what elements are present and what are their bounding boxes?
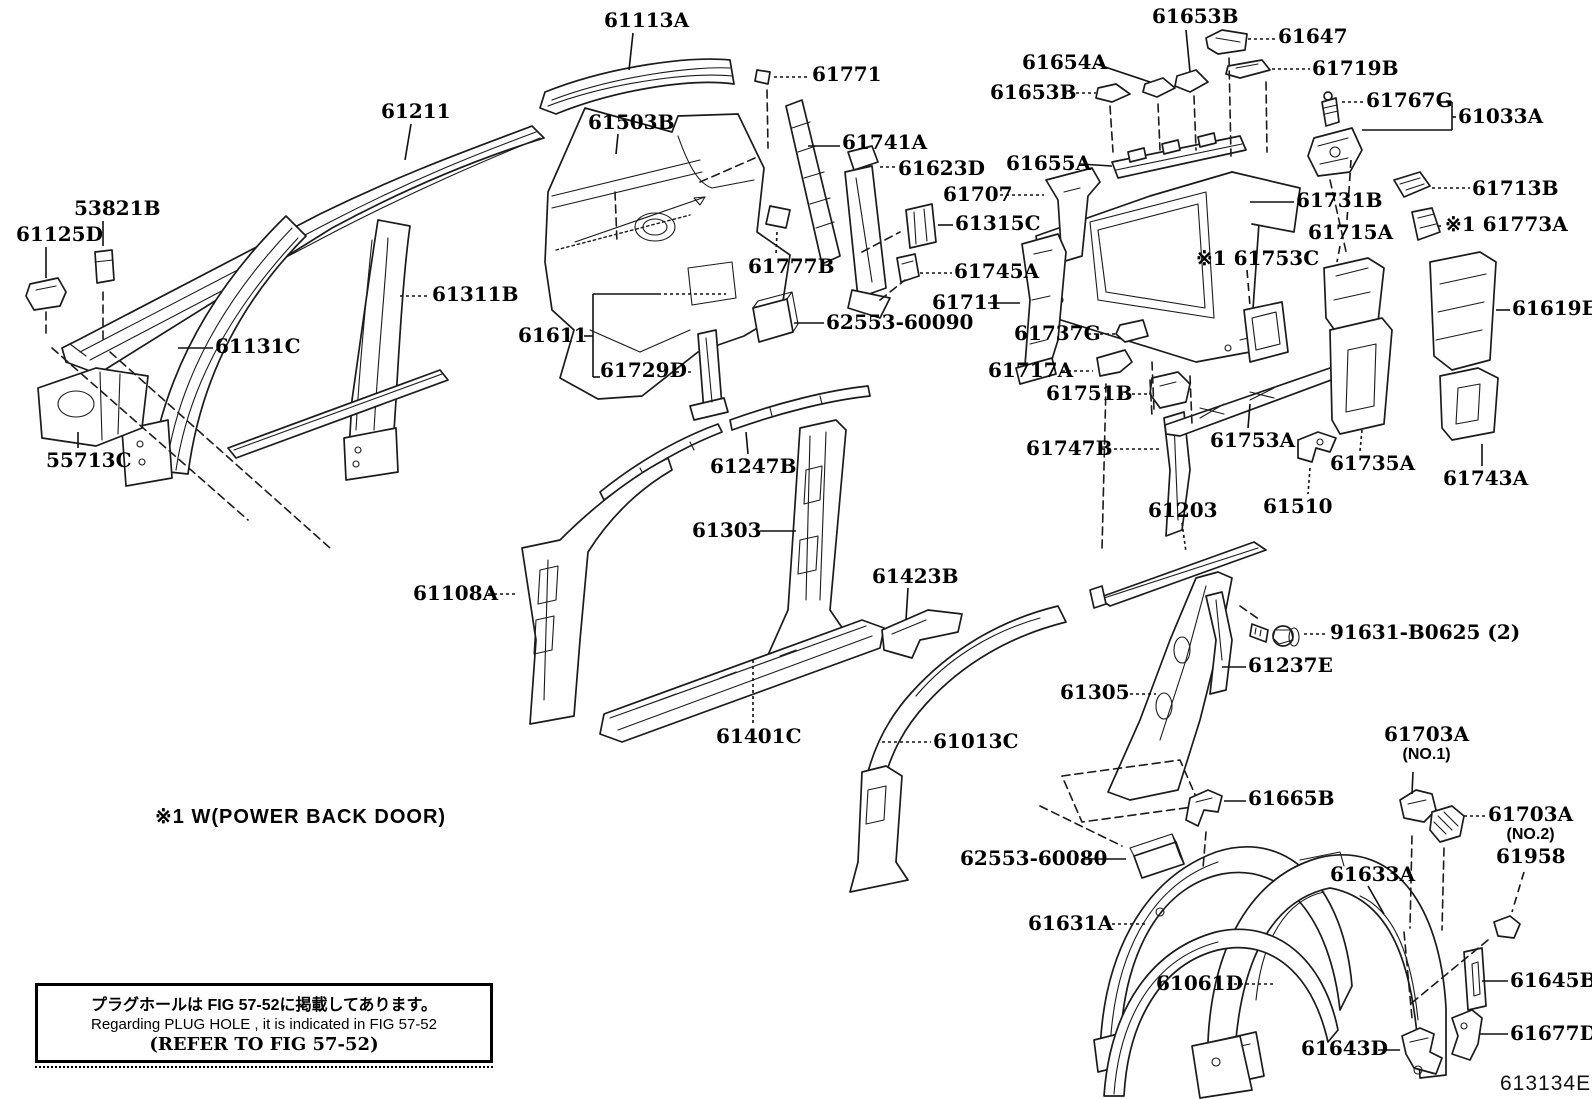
part-number-text: 61735A [1330,451,1415,475]
part-number-text: 61401C [716,724,802,748]
part-label-61731B: 61731B [1296,190,1382,210]
part-label-61711: 61711 [932,292,1002,312]
part-number-text: 61247B [710,454,796,478]
part-label-61753A: 61753A [1210,430,1295,450]
part-label-61631A: 61631A [1028,913,1113,933]
part-number-text: 61747B [1026,436,1112,460]
part-number-text: 61305 [1060,680,1130,704]
part-number-text: 61211 [381,99,451,123]
part-label-61623D: 61623D [898,158,985,178]
part-label-sub: (NO.1) [1384,747,1469,763]
part-number-text: 61647 [1278,24,1348,48]
part-label-61647: 61647 [1278,26,1348,46]
part-number-text: 61777B [748,254,834,278]
part-label-61203: 61203 [1148,500,1218,520]
powerbackdoor-footnote: ※1 W(POWER BACK DOOR) [155,804,446,829]
part-number-text: 55713C [46,448,132,472]
part-label-61655A: 61655A [1006,153,1091,173]
part-number-text: 61741A [842,130,927,154]
part-label-61131C: 61131C [215,336,301,356]
part-label-61311B: 61311B [432,284,518,304]
part-number-text: 61653B [990,80,1076,104]
part-label-61677D: 61677D [1510,1023,1592,1043]
part-number-text: 61619E [1512,296,1592,320]
part-number-text: 61745A [954,259,1039,283]
part-label-61719B: 61719B [1312,58,1398,78]
part-number-text: 61510 [1263,494,1333,518]
part-label-61743A: 61743A [1443,468,1528,488]
part-number-text: 61633A [1330,862,1415,886]
part-label-61643D: 61643D [1301,1038,1388,1058]
part-label-61717A: 61717A [988,360,1073,380]
part-label-61741A: 61741A [842,132,927,152]
part-label-61747B: 61747B [1026,438,1112,458]
note-line-english: Regarding PLUG HOLE , it is indicated in… [38,1016,490,1033]
part-label-61665B: 61665B [1248,788,1334,808]
part-number-text: 61315C [955,211,1041,235]
part-label-61108A: 61108A [413,583,498,603]
part-label-61503B: 61503B [588,112,674,132]
part-number-text: 61715A [1308,220,1393,244]
part-number-text: 61125D [16,222,103,246]
part-number-text: 61013C [933,729,1019,753]
part-label-61735A: 61735A [1330,453,1415,473]
part-label-sub: (NO.2) [1488,827,1573,843]
part-number-text: 61717A [988,358,1073,382]
part-number-text: 61503B [588,110,674,134]
part-label-61315C: 61315C [955,213,1041,233]
part-number-text: 61753A [1210,428,1295,452]
part-number-text: 61303 [692,518,762,542]
part-label-61633A: 61633A [1330,864,1415,884]
part-label-61237E: 61237E [1248,655,1333,675]
part-label-61125D: 61125D [16,224,103,244]
part-number-text: 61771 [812,62,882,86]
part-number-text: 62553-60090 [826,310,973,334]
part-label-61611: 61611 [518,325,588,345]
part-label-61303: 61303 [692,520,762,540]
part-label-61061D: 61061D [1156,973,1243,993]
part-number-text: 61767G [1366,88,1453,112]
part-number-text: 61643D [1301,1036,1388,1060]
part-number-text: 61703A [1488,802,1573,826]
part-label-61653B: 61653B [1152,6,1238,26]
part-label-61033A: 61033A [1458,106,1543,126]
part-label-61423B: 61423B [872,566,958,586]
part-number-text: 61113A [604,8,689,32]
part-number-text: 91631-B0625 (2) [1330,620,1520,644]
part-number-text: 61423B [872,564,958,588]
part-number-text: 53821B [74,196,160,220]
part-label-53821B: 53821B [74,198,160,218]
part-number-text: 61731B [1296,188,1382,212]
part-number-text: 61743A [1443,466,1528,490]
part-label-61703A: 61703A(NO.1) [1384,724,1469,763]
part-label-61703A: 61703A(NO.2) [1488,804,1573,843]
part-label-62553-60090: 62553-60090 [826,312,973,332]
part-label-55713C: 55713C [46,450,132,470]
part-label-61013C: 61013C [933,731,1019,751]
part-number-text: 61033A [1458,104,1543,128]
part-label-61645B: 61645B [1510,970,1592,990]
part-number-text: ※1 61773A [1445,212,1568,236]
part-label-61401C: 61401C [716,726,802,746]
part-label-62553-60080: 62553-60080 [960,848,1107,868]
part-label-61771: 61771 [812,64,882,84]
part-number-text: 61654A [1022,50,1107,74]
part-number-text: 61623D [898,156,985,180]
part-number-text: 61108A [413,581,498,605]
part-number-text: 61719B [1312,56,1398,80]
part-label-61767G: 61767G [1366,90,1453,110]
part-number-text: 61311B [432,282,518,306]
part-label-61247B: 61247B [710,456,796,476]
part-number-text: 61958 [1496,844,1566,868]
part-number-text: 62553-60080 [960,846,1107,870]
part-label-61713B: 61713B [1472,178,1558,198]
part-label-61737G: 61737G [1014,323,1101,343]
part-label-61211: 61211 [381,101,451,121]
part-number-text: 61677D [1510,1021,1592,1045]
part-label-61753C: ※1 61753C [1196,248,1319,268]
part-label-61751B: 61751B [1046,383,1132,403]
callout-layer: 61113A6121161503B6177161741A61623D61653B… [0,0,1592,1099]
part-number-text: 61061D [1156,971,1243,995]
part-label-91631-B0625 (2): 91631-B0625 (2) [1330,622,1520,642]
note-box-underline [35,1066,493,1068]
part-label-61619E: 61619E [1512,298,1592,318]
part-number-text: 61653B [1152,4,1238,28]
part-number-text: 61203 [1148,498,1218,522]
part-label-61958: 61958 [1496,846,1566,866]
part-number-text: 61737G [1014,321,1101,345]
part-label-61715A: 61715A [1308,222,1393,242]
part-number-text: 61729D [600,358,687,382]
part-number-text: 61655A [1006,151,1091,175]
part-label-61510: 61510 [1263,496,1333,516]
part-number-text: 61665B [1248,786,1334,810]
part-number-text: 61611 [518,323,588,347]
part-number-text: 61631A [1028,911,1113,935]
part-label-61745A: 61745A [954,261,1039,281]
part-label-61654A: 61654A [1022,52,1107,72]
figure-code: 613134E [1500,1072,1591,1096]
part-label-61305: 61305 [1060,682,1130,702]
part-label-61729D: 61729D [600,360,687,380]
part-number-text: 61751B [1046,381,1132,405]
part-number-text: 61237E [1248,653,1333,677]
part-label-61113A: 61113A [604,10,689,30]
part-label-61653B: 61653B [990,82,1076,102]
plug-hole-note-box: プラグホールは FIG 57-52に掲載してあります。 Regarding PL… [35,983,493,1063]
part-number-text: 61713B [1472,176,1558,200]
part-number-text: ※1 61753C [1196,246,1319,270]
part-label-61777B: 61777B [748,256,834,276]
parts-diagram-page: 61113A6121161503B6177161741A61623D61653B… [0,0,1592,1099]
note-line-japanese: プラグホールは FIG 57-52に掲載してあります。 [38,991,490,1015]
part-label-61707: 61707 [943,184,1013,204]
part-number-text: 61707 [943,182,1013,206]
part-number-text: 61703A [1384,722,1469,746]
part-label-61773A: ※1 61773A [1445,214,1568,234]
part-number-text: 61131C [215,334,301,358]
note-line-refer: (REFER TO FIG 57-52) [38,1034,490,1055]
part-number-text: 61645B [1510,968,1592,992]
